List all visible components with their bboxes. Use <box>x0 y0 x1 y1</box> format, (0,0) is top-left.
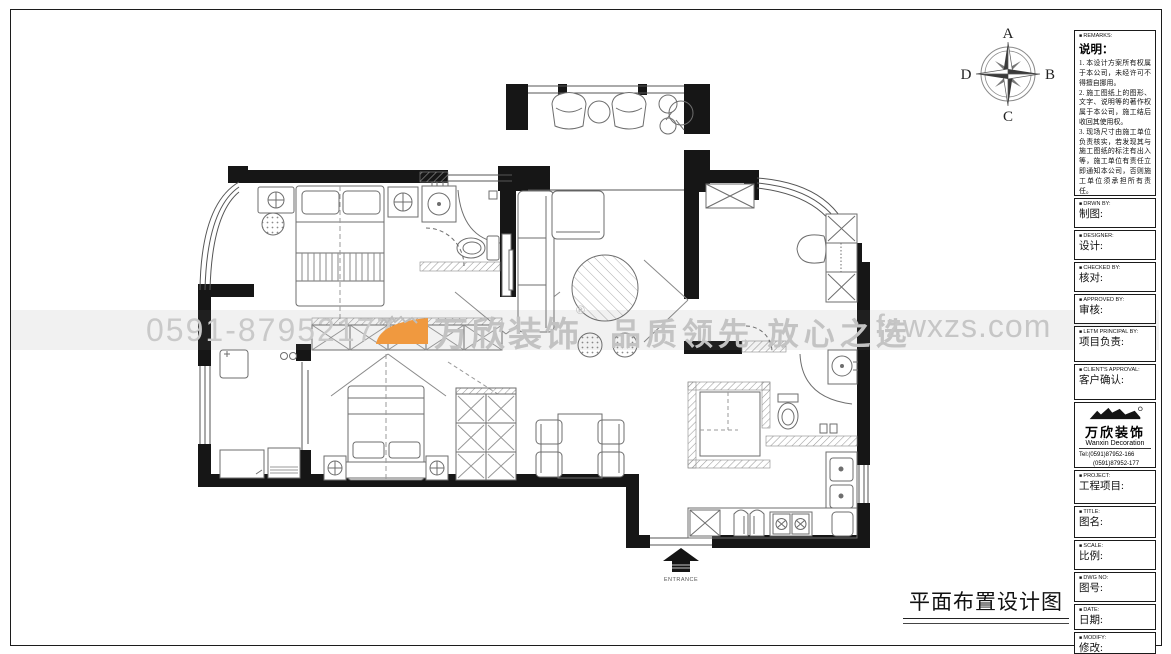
field-label-zh: 设计: <box>1079 240 1151 254</box>
field-label-zh: 工程项目: <box>1079 480 1151 494</box>
field-client-approval: CLIENT'S APPROVAL: 客户确认: <box>1074 364 1156 400</box>
field-label-en: TITLE: <box>1079 509 1151 516</box>
company-name-en: Wanxin Decoration <box>1079 440 1151 449</box>
pillow <box>302 191 339 214</box>
remark-item: 2. 施工图纸上的图形、文字、说明等的著作权属于本公司，施工结后收回其使用权。 <box>1079 89 1151 128</box>
bathroom-2 <box>778 350 858 433</box>
tap <box>830 424 837 433</box>
study-bedroom <box>706 184 857 302</box>
fridge-door <box>750 510 764 536</box>
field-scale: SCALE: 比例: <box>1074 540 1156 570</box>
plant <box>659 95 677 113</box>
field-label-zh: 核对: <box>1079 272 1151 286</box>
field-label-en: CHECKED BY: <box>1079 265 1151 272</box>
field-title: TITLE: 图名: <box>1074 506 1156 538</box>
field-modify: MODIFY: 修改: <box>1074 632 1156 654</box>
remarks-title: 说明： <box>1079 41 1151 57</box>
toilet-tank <box>778 394 798 402</box>
brand-swoosh-icon <box>374 312 432 346</box>
company-tel-2: (0591)87952-177 <box>1079 460 1151 468</box>
tap <box>290 353 297 360</box>
compass-label-north: A <box>1003 26 1014 42</box>
field-label-zh: 客户确认: <box>1079 374 1151 388</box>
tap <box>820 424 827 433</box>
field-label-zh: 制图: <box>1079 208 1151 222</box>
watermark-brand: 万欣装饰 <box>434 307 582 356</box>
stool <box>262 213 284 235</box>
watermark-slogan: 品质领先 放心之选 <box>610 309 912 354</box>
round-table <box>588 101 610 123</box>
watermark-website: fzwxzs.com <box>876 308 1051 345</box>
bathroom-1 <box>422 182 500 266</box>
bottom-bedroom <box>324 354 516 480</box>
pillow <box>343 191 380 214</box>
field-designer: DESIGNER: 设计: <box>1074 230 1156 260</box>
entrance-label: ENTRANCE <box>664 577 698 583</box>
field-label-en: SCALE: <box>1079 543 1151 550</box>
balcony <box>552 93 693 135</box>
field-label-en: MODIFY: <box>1079 635 1151 642</box>
drawing-sheet: ENTRANCE A B C D 0591-87952177 <box>0 0 1171 654</box>
field-label-en: DATE: <box>1079 607 1151 614</box>
compass-label-south: C <box>1003 109 1013 125</box>
field-label-en: LETM PRINCIPAL BY: <box>1079 329 1151 336</box>
field-label-zh: 日期: <box>1079 614 1151 628</box>
tap <box>281 353 288 360</box>
field-label-en: DESIGNER: <box>1079 233 1151 240</box>
company-name-cn: 万欣装饰 <box>1079 426 1151 440</box>
drawing-title-underline <box>903 621 1069 624</box>
wardrobe-top <box>456 388 516 394</box>
company-tel: Tel:(0591)87952-166 <box>1079 451 1151 460</box>
drawing-title: 平面布置设计图 <box>903 586 1069 624</box>
field-approved-by: APPROVED BY: 审核: <box>1074 294 1156 324</box>
watermark-phone: 0591-87952177 <box>146 312 396 349</box>
field-label-zh: 图名: <box>1079 516 1151 530</box>
registered-mark-icon: ® <box>576 303 585 317</box>
field-label-zh: 比例: <box>1079 550 1151 564</box>
remarks-header-en: REMARKS: <box>1079 33 1151 40</box>
field-dwg-no: DWG NO: 图号: <box>1074 572 1156 602</box>
fan-chair <box>552 93 586 130</box>
pillow <box>389 442 420 458</box>
company-roof-icon <box>1087 406 1143 421</box>
field-checked-by: CHECKED BY: 核对: <box>1074 262 1156 292</box>
pillow <box>353 442 384 458</box>
field-label-en: PROJECT: <box>1079 473 1151 480</box>
tv <box>509 250 513 290</box>
field-drawn-by: DRWN BY: 制图: <box>1074 198 1156 228</box>
entrance: ENTRANCE <box>663 548 699 583</box>
field-label-en: APPROVED BY: <box>1079 297 1151 304</box>
dining-table <box>558 414 602 478</box>
desk-chair <box>797 235 826 263</box>
toilet-tank <box>487 236 499 260</box>
field-label-en: CLIENT'S APPROVAL: <box>1079 367 1151 374</box>
field-label-zh: 图号: <box>1079 582 1151 596</box>
drawing-title-text: 平面布置设计图 <box>903 586 1069 619</box>
compass-label-east: B <box>1045 67 1055 83</box>
fridge-door <box>734 510 748 536</box>
dining-area <box>536 414 624 478</box>
remark-item: 1. 本设计方案所有权属于本公司，未经许可不得擅自挪用。 <box>1079 59 1151 88</box>
washer <box>220 450 264 478</box>
field-project: PROJECT: 工程项目: <box>1074 470 1156 504</box>
platform-bed <box>700 392 760 456</box>
utility-balcony <box>220 350 300 478</box>
field-label-zh: 项目负责: <box>1079 336 1151 350</box>
field-label-en: DRWN BY: <box>1079 201 1151 208</box>
remarks-box: REMARKS: 说明： 1. 本设计方案所有权属于本公司，未经许可不得擅自挪用… <box>1074 30 1156 196</box>
compass-rose: A B C D <box>961 26 1055 125</box>
field-date: DATE: 日期: <box>1074 604 1156 630</box>
field-label-en: DWG NO: <box>1079 575 1151 582</box>
shower-head <box>489 191 497 199</box>
plant <box>660 118 676 134</box>
door-arc <box>426 228 464 266</box>
field-project-principal: LETM PRINCIPAL BY: 项目负责: <box>1074 326 1156 362</box>
compass-label-west: D <box>961 67 972 83</box>
fan-chair <box>612 93 646 130</box>
field-label-zh: 审核: <box>1079 304 1151 318</box>
remark-item: 3. 现场尺寸由施工单位负责核实，若发现其与施工图纸的标注有出入等，施工单位有责… <box>1079 128 1151 196</box>
company-logo-box: 万欣装饰 Wanxin Decoration Tel:(0591)87952-1… <box>1074 402 1156 468</box>
field-label-zh: 修改: <box>1079 642 1151 654</box>
shower-glass <box>458 190 500 243</box>
corner-cabinet <box>832 512 853 536</box>
